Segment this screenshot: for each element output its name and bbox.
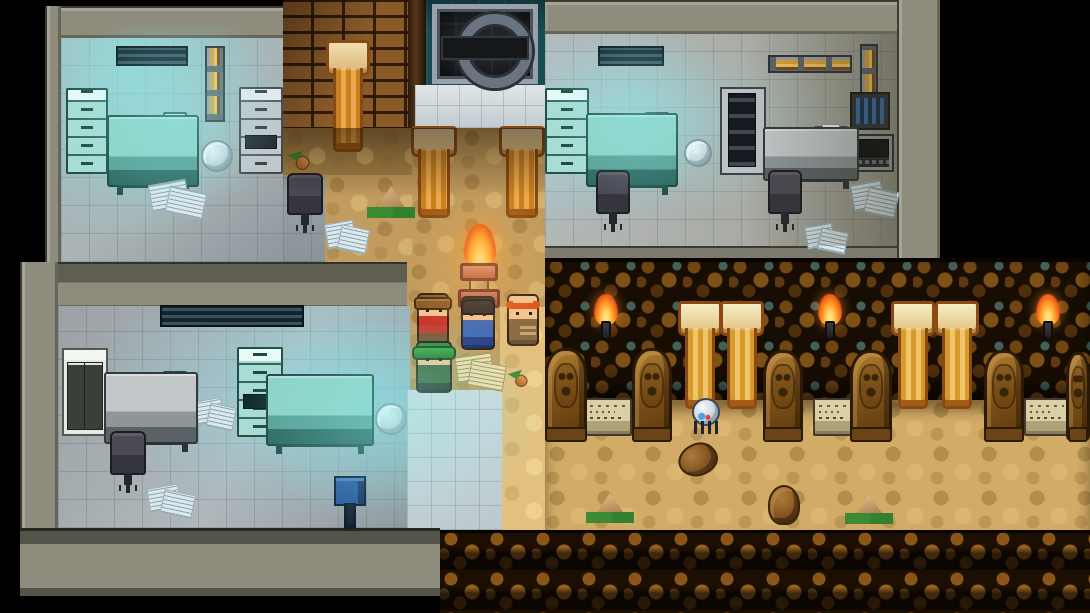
wall-device (850, 92, 890, 130)
floor-gate-landing (415, 85, 545, 128)
wall-bottom-left-room-bottom (20, 528, 440, 596)
filing-cabinet[interactable] (545, 88, 589, 174)
wall-divider-left-rooms (20, 262, 407, 308)
carved-statue (1066, 352, 1090, 440)
tomb-pillar (723, 301, 761, 409)
stone-plaque[interactable] (1024, 398, 1070, 436)
stone-pillar (414, 126, 454, 218)
carved-statue (984, 350, 1024, 440)
desert-plant (371, 186, 411, 218)
stone-plaque[interactable] (813, 398, 855, 436)
scattered-papers (326, 216, 370, 254)
wall-torch (592, 304, 620, 340)
desert-plant (590, 493, 630, 523)
wall-torch (1034, 304, 1062, 340)
paper-ball (201, 140, 233, 172)
computer-desk (266, 374, 374, 446)
filing-cabinet[interactable] (239, 87, 283, 174)
small-plant (288, 152, 314, 172)
tomb-ledge (440, 530, 1090, 613)
tomb-pillar (681, 301, 719, 409)
character-red-shirt[interactable] (417, 293, 449, 345)
wall-top-right-room-side (897, 0, 940, 262)
spider-critter[interactable] (690, 398, 722, 436)
game-viewport (0, 0, 1090, 613)
small-plant (508, 371, 532, 389)
scattered-papers (852, 176, 898, 218)
wall-vent (598, 46, 664, 66)
open-cabinet[interactable] (62, 348, 108, 436)
office-chair[interactable] (768, 170, 802, 214)
wall-vent (116, 46, 188, 66)
wall-top-right-room-top (545, 0, 940, 34)
dropped-papers (456, 350, 506, 390)
stone-pillar (502, 126, 542, 218)
scattered-papers (148, 481, 196, 517)
paper-ball (375, 403, 407, 435)
tomb-pillar (894, 301, 932, 409)
carved-statue (850, 350, 892, 440)
stone-head (768, 485, 800, 525)
office-chair[interactable] (287, 173, 323, 215)
stone-plaque[interactable] (584, 398, 632, 436)
office-chair[interactable] (110, 431, 146, 475)
storage-cabinet[interactable] (720, 87, 766, 175)
wall-top-left-room-top (45, 6, 283, 38)
office-chair[interactable] (596, 170, 630, 214)
character-green-hat[interactable] (416, 341, 452, 393)
paper-ball (684, 139, 712, 167)
scattered-papers (150, 176, 208, 218)
character-monk[interactable] (507, 294, 539, 346)
wall-torch (816, 304, 844, 340)
cable-conduit (205, 46, 225, 122)
character-blue-vest[interactable] (461, 296, 495, 350)
scanner-device[interactable] (334, 476, 366, 524)
carved-statue (545, 348, 587, 440)
wall-vent (160, 305, 304, 327)
wall-top-left-room-side (45, 6, 61, 262)
carved-statue (632, 348, 672, 440)
metal-gate[interactable] (432, 4, 538, 84)
desert-plant (849, 494, 889, 524)
tomb-pillar (938, 301, 976, 409)
filing-cabinet[interactable] (66, 88, 108, 174)
wall-pipe (768, 55, 852, 73)
scattered-papers (196, 394, 236, 430)
floor-passage-to-tomb (407, 390, 502, 530)
carved-statue (763, 350, 803, 440)
scattered-papers (806, 220, 848, 254)
stone-pillar (329, 40, 367, 152)
